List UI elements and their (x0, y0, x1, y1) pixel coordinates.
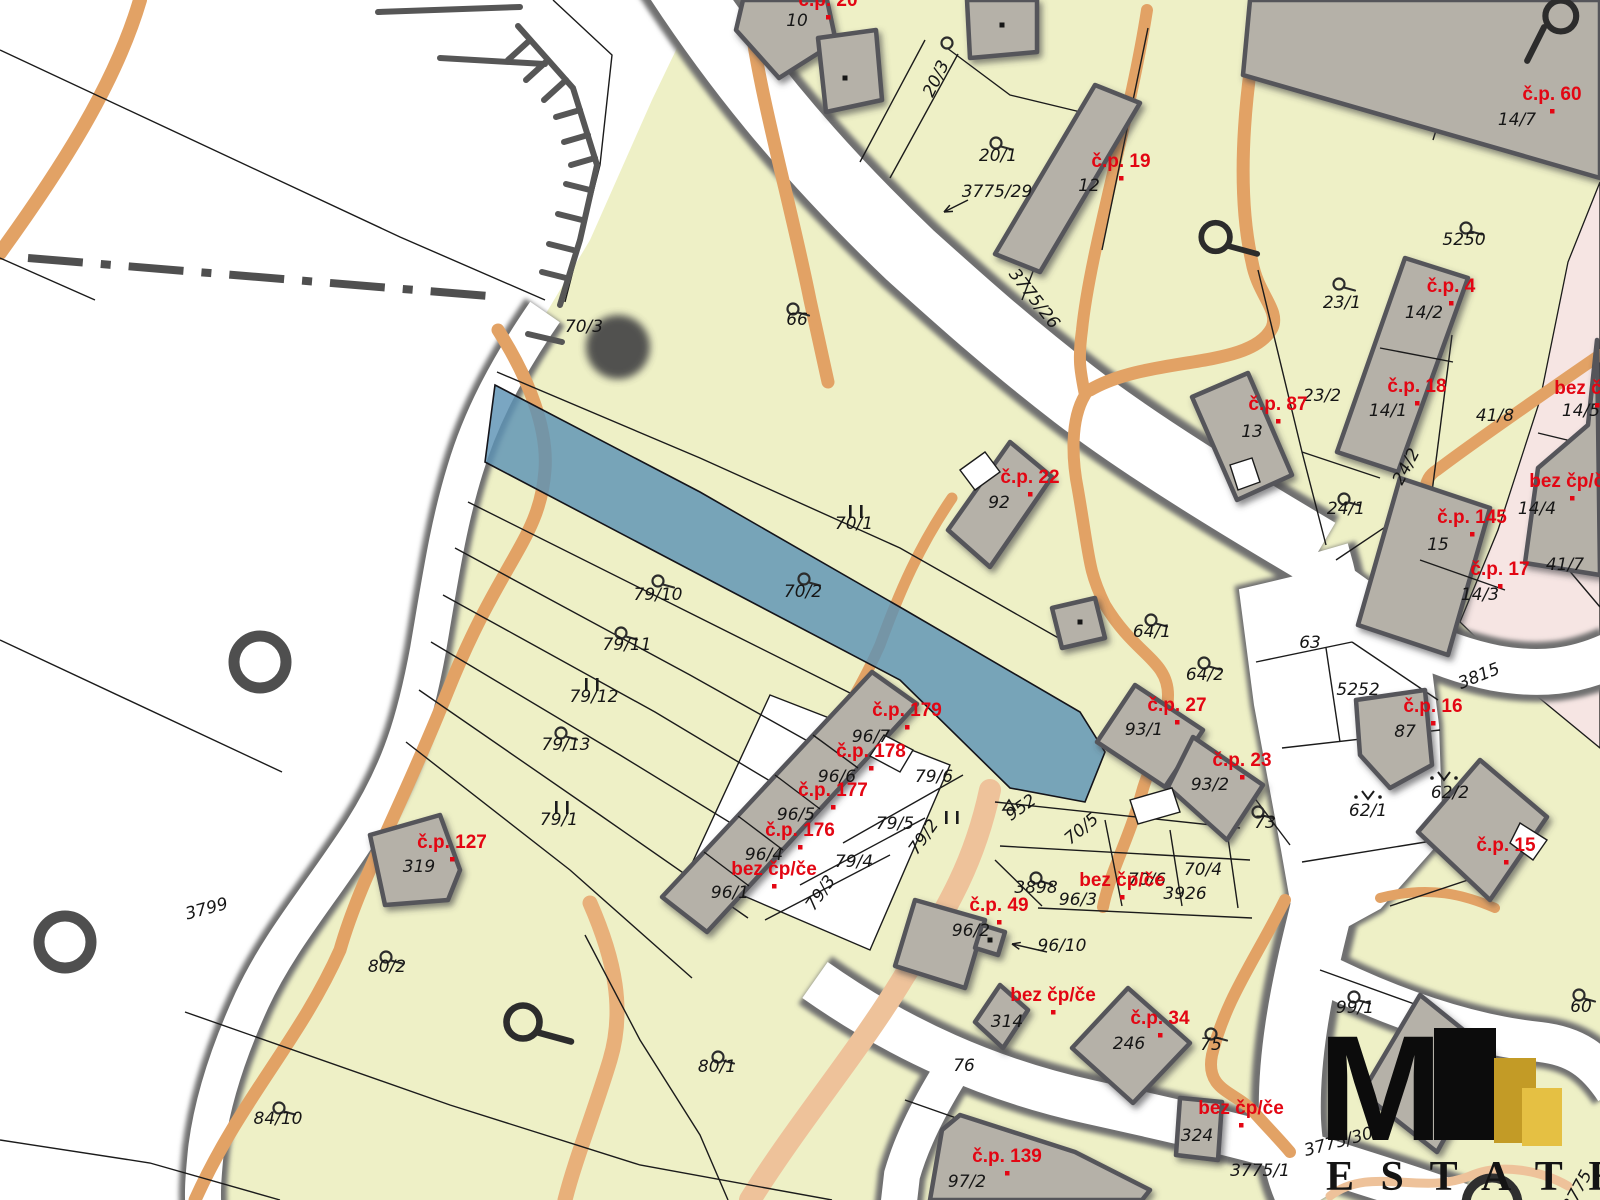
building-label: č.p. 127 (417, 832, 487, 853)
parcel-label: 96/10 (1038, 936, 1087, 956)
building-definition-dot (1276, 419, 1281, 424)
building-definition-dot (905, 725, 910, 730)
building-top (967, 0, 1037, 58)
parcel-label: 24/1 (1327, 499, 1365, 519)
building-label: č.p. 20 (798, 0, 857, 11)
building-label: č.p. 87 (1248, 394, 1307, 415)
parcel-label: 70/4 (1184, 860, 1222, 880)
parcel-label: 93/1 (1125, 720, 1163, 740)
building-definition-dot (1504, 860, 1509, 865)
parcel-label: 12 (1078, 176, 1100, 196)
parcel-label: 87 (1394, 722, 1416, 742)
building-definition-dot (1175, 720, 1180, 725)
parcel-label: 84/10 (254, 1109, 303, 1129)
parcel-label: 14/4 (1518, 499, 1556, 519)
parcel-label: 96/1 (711, 883, 749, 903)
parcel-label: 66 (786, 310, 808, 330)
parcel-label: 324 (1181, 1126, 1213, 1146)
building-definition-dot (1158, 1033, 1163, 1038)
parcel-label: 64/2 (1186, 665, 1224, 685)
building-definition-dot (1449, 301, 1454, 306)
building-10b (818, 30, 882, 112)
parcel-label: 41/8 (1476, 406, 1514, 426)
building-label: bez čp/če (1079, 870, 1165, 891)
building-definition-dot (1570, 496, 1575, 501)
parcel-label: 70/1 (835, 514, 873, 534)
parcel-label: 5250 (1442, 230, 1485, 250)
building-label: bez čp/če (1529, 471, 1600, 492)
building-point-icon (1078, 620, 1083, 625)
building-definition-dot (1595, 403, 1600, 408)
parcel-label: 79/12 (570, 687, 619, 707)
parcel-label: 10 (786, 11, 808, 31)
parcel-label: 73 (1254, 813, 1276, 833)
parcel-label: 246 (1113, 1034, 1146, 1054)
parcel-label: 92 (988, 493, 1010, 513)
parcel-label: 319 (403, 857, 435, 877)
parcel-label: 14/2 (1405, 303, 1443, 323)
parcel-label: 93/2 (1191, 775, 1229, 795)
building-label: č.p. 22 (1000, 467, 1059, 488)
building-definition-dot (1239, 1123, 1244, 1128)
building-label: č.p. 49 (969, 895, 1028, 916)
building-definition-dot (1005, 1171, 1010, 1176)
building-label: č.p. 145 (1437, 507, 1507, 528)
building-label: č.p. 17 (1470, 559, 1529, 580)
building-label: bez čp/če (1554, 378, 1600, 399)
building-label: č.p. 15 (1476, 835, 1536, 856)
building-label: č.p. 16 (1403, 696, 1462, 717)
parcel-label: 79/11 (603, 635, 652, 655)
parcel-label: 96/2 (952, 921, 990, 941)
building-label: bez čp/če (1198, 1098, 1284, 1119)
building-definition-dot (798, 845, 803, 850)
parcel-label: 23/2 (1303, 386, 1341, 406)
parcel-label: 14/7 (1498, 110, 1536, 130)
cadastral-map-viewport: 1020/120/33775/291214/7525023/114/23775/… (0, 0, 1600, 1200)
parcel-label: 75 (1200, 1035, 1222, 1055)
building-definition-dot (1470, 532, 1475, 537)
parcel-label: 79/10 (634, 585, 683, 605)
building-definition-dot (1120, 895, 1125, 900)
parcel-label: 79/6 (915, 767, 953, 787)
parcel-label: 79/4 (835, 852, 873, 872)
parcel-label: 14/5 (1562, 401, 1600, 421)
parcel-label: 70/3 (565, 317, 603, 337)
parcel-label: 76 (953, 1056, 975, 1076)
parcel-label: 60 (1570, 997, 1592, 1017)
building-label: č.p. 178 (836, 741, 906, 762)
building-label: č.p. 18 (1387, 376, 1446, 397)
building-definition-dot (1550, 109, 1555, 114)
logo-estate-text: E S T A T E (1326, 1154, 1600, 1200)
parcel-label: 13 (1241, 422, 1263, 442)
building-definition-dot (450, 857, 455, 862)
parcel-label: 79/5 (876, 814, 914, 834)
parcel-label: 5252 (1336, 680, 1379, 700)
parcel-label: 20/1 (979, 146, 1017, 166)
building-definition-dot (831, 805, 836, 810)
building-definition-dot (772, 884, 777, 889)
building-label: č.p. 176 (765, 820, 835, 841)
building-point-icon (1000, 23, 1005, 28)
parcel-label: 96/3 (1059, 890, 1097, 910)
building-definition-dot (1028, 492, 1033, 497)
building-definition-dot (1415, 401, 1420, 406)
parcel-label: 3775/29 (962, 182, 1033, 202)
building-point-icon (843, 76, 848, 81)
parcel-label: 62/2 (1431, 783, 1469, 803)
parcel-label: 79/13 (542, 735, 591, 755)
building-label: č.p. 60 (1522, 84, 1581, 105)
parcel-label: 23/1 (1323, 293, 1361, 313)
building-definition-dot (1119, 176, 1124, 181)
building-definition-dot (1240, 775, 1245, 780)
building-label: č.p. 23 (1212, 750, 1271, 771)
parcel-label: 80/2 (368, 957, 406, 977)
building-definition-dot (869, 766, 874, 771)
parcel-label: 41/7 (1546, 555, 1584, 575)
building-label: bez čp/če (731, 859, 817, 880)
parcel-label: 97/2 (948, 1172, 986, 1192)
building-definition-dot (826, 15, 831, 20)
building-label: č.p. 27 (1147, 695, 1206, 716)
building-definition-dot (1498, 584, 1503, 589)
building-definition-dot (1051, 1010, 1056, 1015)
building-label: bez čp/če (1010, 985, 1096, 1006)
building-definition-dot (1431, 721, 1436, 726)
parcel-label: 314 (991, 1012, 1023, 1032)
logo-gold-light (1522, 1088, 1562, 1146)
building-label: č.p. 177 (798, 780, 868, 801)
building-definition-dot (997, 920, 1002, 925)
parcel-label: 14/3 (1461, 585, 1499, 605)
building-label: č.p. 179 (872, 700, 942, 721)
building-label: č.p. 19 (1091, 151, 1150, 172)
building-label: č.p. 4 (1427, 276, 1476, 297)
building-label: č.p. 34 (1130, 1008, 1190, 1029)
parcel-label: 15 (1427, 535, 1449, 555)
parcel-label: 62/1 (1349, 801, 1387, 821)
parcel-label: 3926 (1163, 884, 1206, 904)
parcel-label: 3775/1 (1230, 1161, 1290, 1181)
parcel-label: 14/1 (1369, 401, 1407, 421)
building-label: č.p. 139 (972, 1146, 1042, 1167)
parcel-label: 63 (1299, 633, 1321, 653)
parcel-label: 70/2 (784, 582, 822, 602)
cadastral-map-canvas[interactable]: 1020/120/33775/291214/7525023/114/23775/… (0, 0, 1600, 1200)
parcel-label: 64/1 (1133, 622, 1171, 642)
parcel-label: 80/1 (698, 1057, 736, 1077)
parcel-label: 79/1 (540, 810, 578, 830)
logo-block-i (1434, 1028, 1496, 1140)
